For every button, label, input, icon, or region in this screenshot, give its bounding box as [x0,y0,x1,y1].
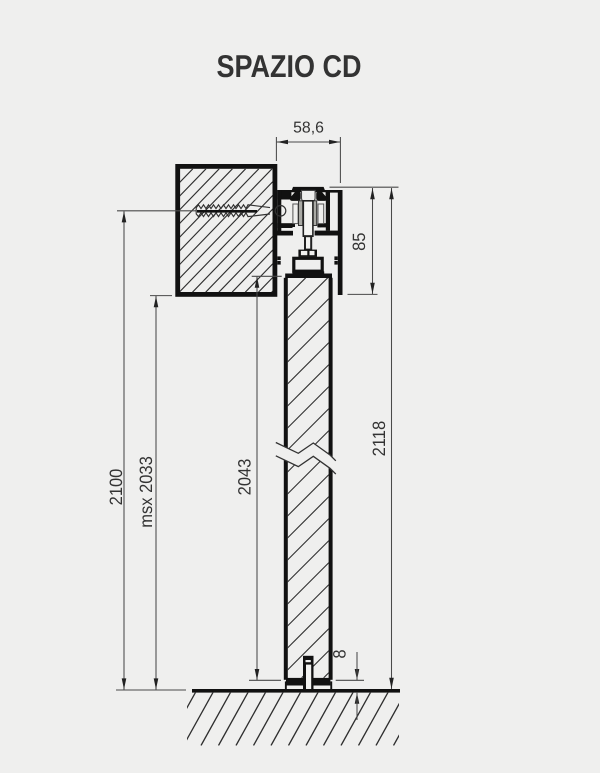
svg-text:2118: 2118 [370,421,389,456]
svg-text:2043: 2043 [235,459,254,496]
svg-text:8: 8 [330,649,349,658]
svg-text:58,6: 58,6 [293,120,324,137]
svg-text:SPAZIO CD: SPAZIO CD [216,49,361,84]
svg-text:msx 2033: msx 2033 [137,456,156,528]
svg-text:2100: 2100 [107,469,126,506]
svg-text:85: 85 [350,233,369,251]
